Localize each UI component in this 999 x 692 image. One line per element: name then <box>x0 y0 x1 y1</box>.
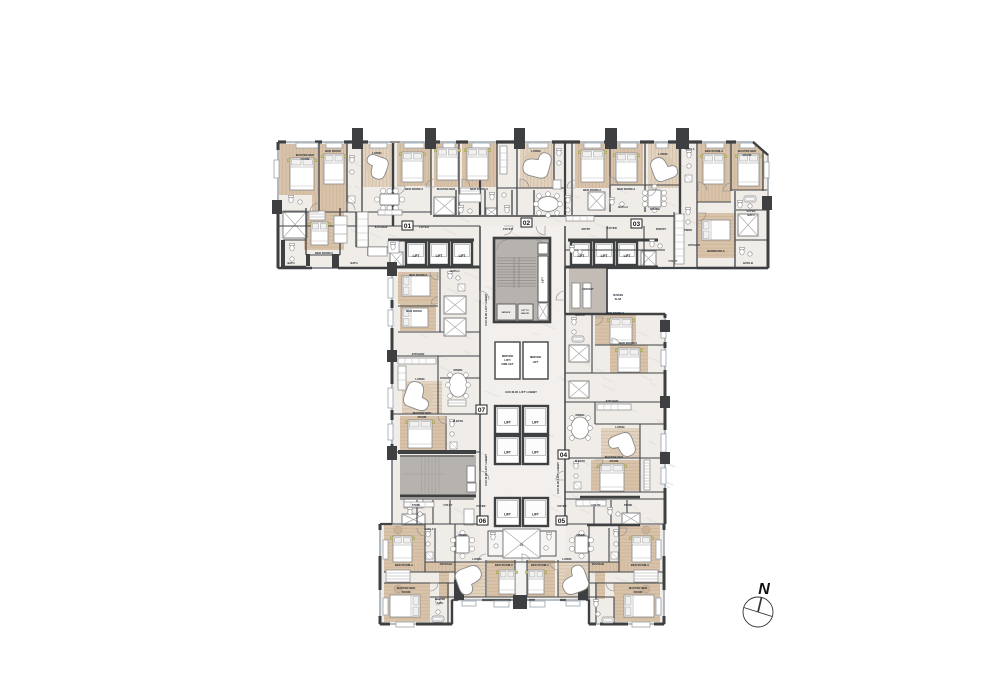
svg-text:BED ROOM-2: BED ROOM-2 <box>583 188 601 192</box>
svg-text:LIVING: LIVING <box>472 557 481 561</box>
svg-text:DINING: DINING <box>576 533 585 537</box>
svg-text:BED ROOM-3: BED ROOM-3 <box>617 187 635 191</box>
svg-text:LIFT: LIFT <box>413 254 420 258</box>
svg-text:LIFT: LIFT <box>541 277 545 283</box>
svg-text:SUNKEN: SUNKEN <box>613 294 623 297</box>
svg-text:MASTER: MASTER <box>435 598 445 601</box>
svg-text:BATH: BATH <box>350 261 357 265</box>
svg-text:3.00 M.W. LIFT LOBBY: 3.00 M.W. LIFT LOBBY <box>505 390 537 394</box>
svg-text:UTILITY: UTILITY <box>591 504 600 507</box>
svg-text:05: 05 <box>558 518 566 525</box>
svg-text:3.00 M.W. LIFT LOBBY: 3.00 M.W. LIFT LOBBY <box>484 454 488 486</box>
svg-text:SUPER: SUPER <box>747 209 756 213</box>
svg-text:LIFT: LIFT <box>459 254 466 258</box>
svg-text:04: 04 <box>560 452 568 459</box>
svg-text:LIFT: LIFT <box>436 254 443 258</box>
svg-text:LIVING: LIVING <box>562 557 571 561</box>
svg-text:LIFT: LIFT <box>532 513 539 517</box>
svg-text:ROOM: ROOM <box>743 153 752 157</box>
svg-text:PANTRY: PANTRY <box>656 227 667 231</box>
svg-text:LIFT: LIFT <box>532 421 539 425</box>
svg-text:DINING: DINING <box>453 368 462 372</box>
svg-text:STORE: STORE <box>412 504 421 507</box>
svg-text:BED ROOM-2: BED ROOM-2 <box>409 273 427 277</box>
svg-text:FOYER: FOYER <box>558 504 567 508</box>
svg-text:BATH-1: BATH-1 <box>450 269 460 273</box>
svg-text:STORE: STORE <box>624 504 633 507</box>
svg-text:KITCHEN: KITCHEN <box>412 352 424 356</box>
svg-text:KITCHEN: KITCHEN <box>375 225 387 229</box>
svg-text:M.BATH: M.BATH <box>575 459 585 463</box>
svg-text:FOYER: FOYER <box>477 504 486 508</box>
svg-text:BED ROOM-C: BED ROOM-C <box>495 563 513 567</box>
svg-text:LIVING: LIVING <box>372 151 381 155</box>
svg-text:LIVING: LIVING <box>415 377 424 381</box>
svg-text:SLAB: SLAB <box>615 298 622 301</box>
svg-text:ROOM: ROOM <box>634 590 643 594</box>
svg-text:M.BATH: M.BATH <box>453 419 463 423</box>
svg-text:LIVING: LIVING <box>615 425 624 429</box>
svg-text:BATH: BATH <box>287 261 294 265</box>
svg-text:LIFT TO: LIFT TO <box>521 310 529 312</box>
svg-text:LIFT: LIFT <box>533 360 539 364</box>
svg-text:3.00 M.W. LIFT LOBBY: 3.00 M.W. LIFT LOBBY <box>556 462 560 494</box>
svg-text:BELOW: BELOW <box>521 313 529 315</box>
svg-text:FOYER: FOYER <box>503 227 513 231</box>
svg-text:BATH: BATH <box>437 602 444 605</box>
svg-text:BATH-3: BATH-3 <box>618 205 628 209</box>
svg-text:KITCHEN: KITCHEN <box>688 243 700 247</box>
svg-text:PASSAGE: PASSAGE <box>592 562 605 566</box>
svg-text:ROOM: ROOM <box>418 415 427 419</box>
svg-text:LIFT: LIFT <box>504 451 511 455</box>
svg-text:LIVING: LIVING <box>658 152 667 156</box>
svg-text:3.00 M.W. LIFT LOBBY: 3.00 M.W. LIFT LOBBY <box>484 294 488 326</box>
svg-text:FIRE LIFT: FIRE LIFT <box>501 362 514 366</box>
svg-text:BED ROOM-2: BED ROOM-2 <box>470 187 488 191</box>
svg-text:ENTRY: ENTRY <box>582 227 591 231</box>
svg-text:DINING: DINING <box>458 533 467 537</box>
svg-text:BED ROOM-3: BED ROOM-3 <box>405 187 423 191</box>
svg-text:BATH-A: BATH-A <box>425 528 434 531</box>
svg-text:07: 07 <box>478 407 486 414</box>
svg-text:FOYER: FOYER <box>419 225 429 229</box>
svg-text:03: 03 <box>520 543 524 547</box>
svg-text:LIFT: LIFT <box>504 421 511 425</box>
svg-text:LIFT: LIFT <box>624 254 631 258</box>
svg-text:SERVICE: SERVICE <box>530 355 542 359</box>
svg-text:MASTER BED: MASTER BED <box>437 187 456 191</box>
svg-text:SERVICE: SERVICE <box>502 312 511 314</box>
svg-text:01: 01 <box>404 223 412 230</box>
svg-text:LIFT: LIFT <box>532 451 539 455</box>
svg-text:PWDR: PWDR <box>684 228 692 232</box>
svg-text:SERVICE: SERVICE <box>502 354 514 358</box>
svg-text:06: 06 <box>479 518 487 525</box>
svg-text:LIFT: LIFT <box>601 254 608 258</box>
svg-text:ROOM: ROOM <box>402 590 411 594</box>
svg-text:BED ROOM-C: BED ROOM-C <box>531 563 549 567</box>
svg-text:LIFT: LIFT <box>504 513 511 517</box>
svg-text:UTILITY: UTILITY <box>443 504 452 507</box>
svg-text:ROOM: ROOM <box>610 459 619 463</box>
svg-text:BED ROOM-A: BED ROOM-A <box>705 149 723 153</box>
svg-text:LIVING: LIVING <box>531 149 540 153</box>
svg-text:DINING: DINING <box>650 207 660 211</box>
svg-text:BATH: BATH <box>747 213 754 217</box>
svg-text:PASSAGE: PASSAGE <box>440 562 453 566</box>
svg-text:FOYER: FOYER <box>607 226 617 230</box>
svg-text:BED ROOM: BED ROOM <box>325 149 341 153</box>
svg-text:N: N <box>758 581 770 598</box>
svg-text:KITCHEN: KITCHEN <box>606 399 618 403</box>
svg-text:02: 02 <box>523 220 531 227</box>
svg-text:BED ROOM-A: BED ROOM-A <box>395 563 413 567</box>
svg-text:BATH-B: BATH-B <box>743 261 753 265</box>
svg-text:BED ROOM-A: BED ROOM-A <box>631 563 649 567</box>
svg-text:BED ROOM-5: BED ROOM-5 <box>315 251 333 255</box>
svg-text:ROOM: ROOM <box>301 157 310 161</box>
svg-text:DINING: DINING <box>575 413 584 417</box>
svg-text:LIFT/: LIFT/ <box>504 358 510 362</box>
svg-text:BED ROOM-1: BED ROOM-1 <box>619 341 637 345</box>
svg-text:BEDROOM-C: BEDROOM-C <box>707 249 725 253</box>
svg-text:BATH-A: BATH-A <box>686 148 695 151</box>
svg-text:SERVANT: SERVANT <box>582 288 594 291</box>
svg-text:UTILITY: UTILITY <box>668 260 677 263</box>
svg-text:BATH-2: BATH-2 <box>575 313 585 317</box>
svg-text:03: 03 <box>633 221 641 228</box>
svg-text:BED ROOM-2: BED ROOM-2 <box>606 311 624 315</box>
svg-text:BED ROOM: BED ROOM <box>406 309 422 313</box>
svg-text:LIFT: LIFT <box>578 254 585 258</box>
